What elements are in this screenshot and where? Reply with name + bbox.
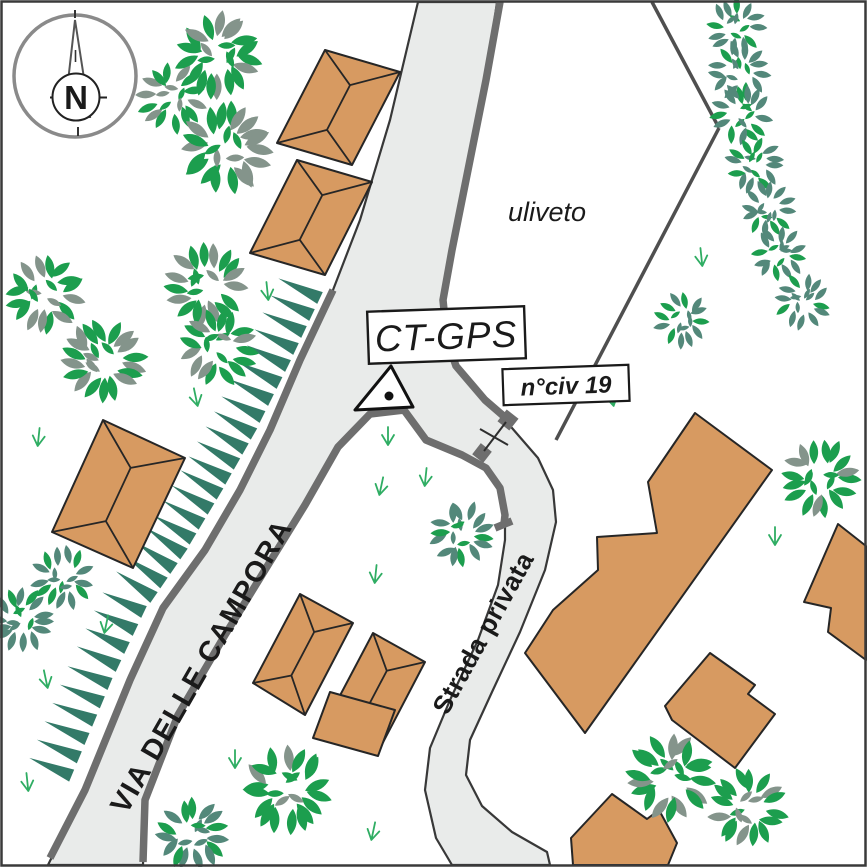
- tree-symbol: [780, 439, 862, 519]
- compass-north-letter: N: [64, 79, 88, 116]
- building-outline: [804, 524, 866, 660]
- grass-arrow-symbol: [694, 247, 708, 266]
- leaf: [44, 278, 59, 293]
- grass-arrow-symbol: [366, 821, 381, 841]
- leaf: [163, 269, 190, 286]
- leaf: [746, 12, 765, 21]
- grass-arrow-symbol: [20, 772, 34, 791]
- leaf: [708, 62, 727, 69]
- leaf: [135, 90, 156, 99]
- tree-symbol: [428, 500, 495, 568]
- station-dot: [385, 392, 394, 401]
- leaf: [772, 209, 778, 221]
- leaf: [199, 242, 209, 267]
- leaf: [457, 540, 471, 547]
- tree-symbol: [724, 136, 785, 195]
- leaf: [653, 321, 671, 331]
- leaf: [761, 143, 780, 156]
- tree-symbol: [653, 291, 710, 350]
- civic-number-label: n°civ 19: [502, 365, 629, 405]
- scarp-tick: [29, 758, 74, 782]
- leaf: [749, 168, 761, 179]
- grass-arrow-symbol: [229, 750, 241, 768]
- leaf: [19, 632, 27, 652]
- scarp-tick: [45, 721, 90, 745]
- tree-symbol: [624, 733, 717, 824]
- leaf: [774, 302, 791, 318]
- leaf: [777, 226, 785, 244]
- leaf: [286, 808, 298, 835]
- ct-gps-label: CT-GPS: [367, 306, 526, 363]
- scarp-tick: [68, 666, 113, 690]
- compass-rose-icon: N: [14, 10, 136, 137]
- leaf: [707, 812, 731, 821]
- leaf: [99, 340, 116, 357]
- leaf: [670, 310, 682, 320]
- leaf: [34, 618, 54, 625]
- leaf: [778, 196, 796, 207]
- leaf: [778, 285, 796, 295]
- grass-arrow-symbol: [769, 527, 781, 545]
- leaf: [665, 327, 677, 345]
- leaf: [171, 113, 181, 135]
- tree-symbol: [707, 39, 772, 104]
- tree-symbol: [242, 744, 334, 835]
- tree-symbol: [154, 797, 230, 867]
- leaf: [451, 531, 456, 544]
- grass-arrow-symbol: [188, 387, 203, 407]
- scarp-tick: [37, 740, 82, 764]
- leaf: [690, 323, 705, 341]
- leaf: [779, 207, 797, 215]
- leaf: [766, 162, 784, 169]
- leaf: [28, 630, 41, 651]
- leaf: [683, 330, 695, 348]
- leaf: [730, 31, 743, 40]
- leaf: [745, 188, 761, 205]
- leaf: [689, 773, 717, 788]
- grass-arrow-symbol: [38, 669, 53, 689]
- grass-arrow-symbol: [374, 476, 389, 496]
- leaf: [54, 547, 62, 566]
- tree-symbol: [0, 586, 54, 652]
- leaf: [209, 243, 219, 268]
- leaf: [738, 23, 750, 33]
- leaf: [430, 519, 450, 528]
- leaf: [706, 21, 725, 31]
- grass-arrow-symbol: [260, 281, 274, 300]
- scarp-tick: [60, 685, 105, 709]
- tree-symbol: [4, 254, 86, 336]
- tree-symbol: [750, 226, 807, 282]
- leaf: [34, 610, 55, 620]
- leaf: [198, 41, 214, 59]
- scarp-tick: [52, 703, 97, 727]
- leaf: [823, 472, 839, 478]
- tree-symbol: [173, 9, 264, 100]
- tree-symbol: [178, 308, 260, 388]
- leaf: [122, 352, 148, 363]
- leaf: [774, 294, 792, 302]
- leaf: [61, 291, 86, 306]
- leaf: [163, 282, 189, 296]
- leaf: [653, 310, 671, 323]
- leaf: [678, 332, 685, 349]
- leaf: [749, 23, 767, 31]
- leaf: [204, 268, 221, 284]
- leaf: [766, 155, 784, 163]
- leaf: [465, 500, 478, 521]
- scarp-tick: [77, 646, 121, 672]
- leaf: [197, 55, 215, 63]
- leaf: [680, 291, 690, 309]
- leaf: [744, 769, 753, 793]
- leaf: [692, 318, 709, 325]
- leaf: [743, 62, 752, 75]
- leaf: [749, 216, 761, 234]
- leaf: [177, 838, 193, 847]
- leaf: [266, 790, 284, 797]
- grass-arrow-symbol: [32, 427, 46, 446]
- ct-gps-label-text: CT-GPS: [374, 314, 518, 360]
- leaf: [789, 243, 807, 256]
- civic-number-label-text: n°civ 19: [520, 371, 613, 401]
- leaf: [186, 287, 204, 296]
- tree-symbol: [774, 273, 831, 332]
- leaf: [71, 549, 83, 569]
- leaf: [223, 279, 249, 292]
- leaf: [205, 822, 228, 833]
- scarp-tick: [102, 592, 146, 618]
- leaf: [728, 125, 735, 144]
- leaf: [750, 248, 768, 257]
- olive-grove-label: uliveto: [508, 197, 586, 227]
- leaf: [155, 90, 170, 98]
- tree-symbol: [59, 317, 149, 403]
- site-map: CT-GPS n°civ 19 uliveto VIA DELLE CAMPOR…: [0, 0, 867, 867]
- tree-symbol: [707, 766, 790, 847]
- leaf: [430, 528, 450, 537]
- grass-arrow-symbol: [369, 564, 383, 583]
- scarp-tick: [85, 628, 129, 654]
- leaf: [784, 229, 800, 246]
- leaf: [66, 591, 77, 611]
- leaf: [226, 154, 245, 162]
- grass-arrow-symbol: [419, 467, 433, 486]
- leaf: [63, 544, 74, 564]
- leaf: [725, 73, 738, 81]
- leaf: [809, 440, 818, 464]
- leaf: [711, 99, 731, 110]
- building-footprint: [52, 420, 185, 568]
- site-map-page: CT-GPS n°civ 19 uliveto VIA DELLE CAMPOR…: [0, 0, 867, 867]
- leaf: [795, 302, 800, 314]
- leaf: [744, 109, 756, 120]
- grass-arrow-symbol: [382, 427, 394, 445]
- leaf: [771, 264, 781, 282]
- leaf: [164, 84, 179, 92]
- leaf: [753, 70, 772, 79]
- leaf: [795, 313, 807, 331]
- leaf: [787, 310, 798, 328]
- building-footprint: [804, 524, 866, 660]
- leaf: [767, 243, 779, 252]
- leaf: [214, 350, 230, 365]
- leaf: [748, 822, 759, 846]
- leaf: [771, 184, 788, 200]
- leaf: [190, 847, 205, 867]
- leaf: [754, 113, 774, 124]
